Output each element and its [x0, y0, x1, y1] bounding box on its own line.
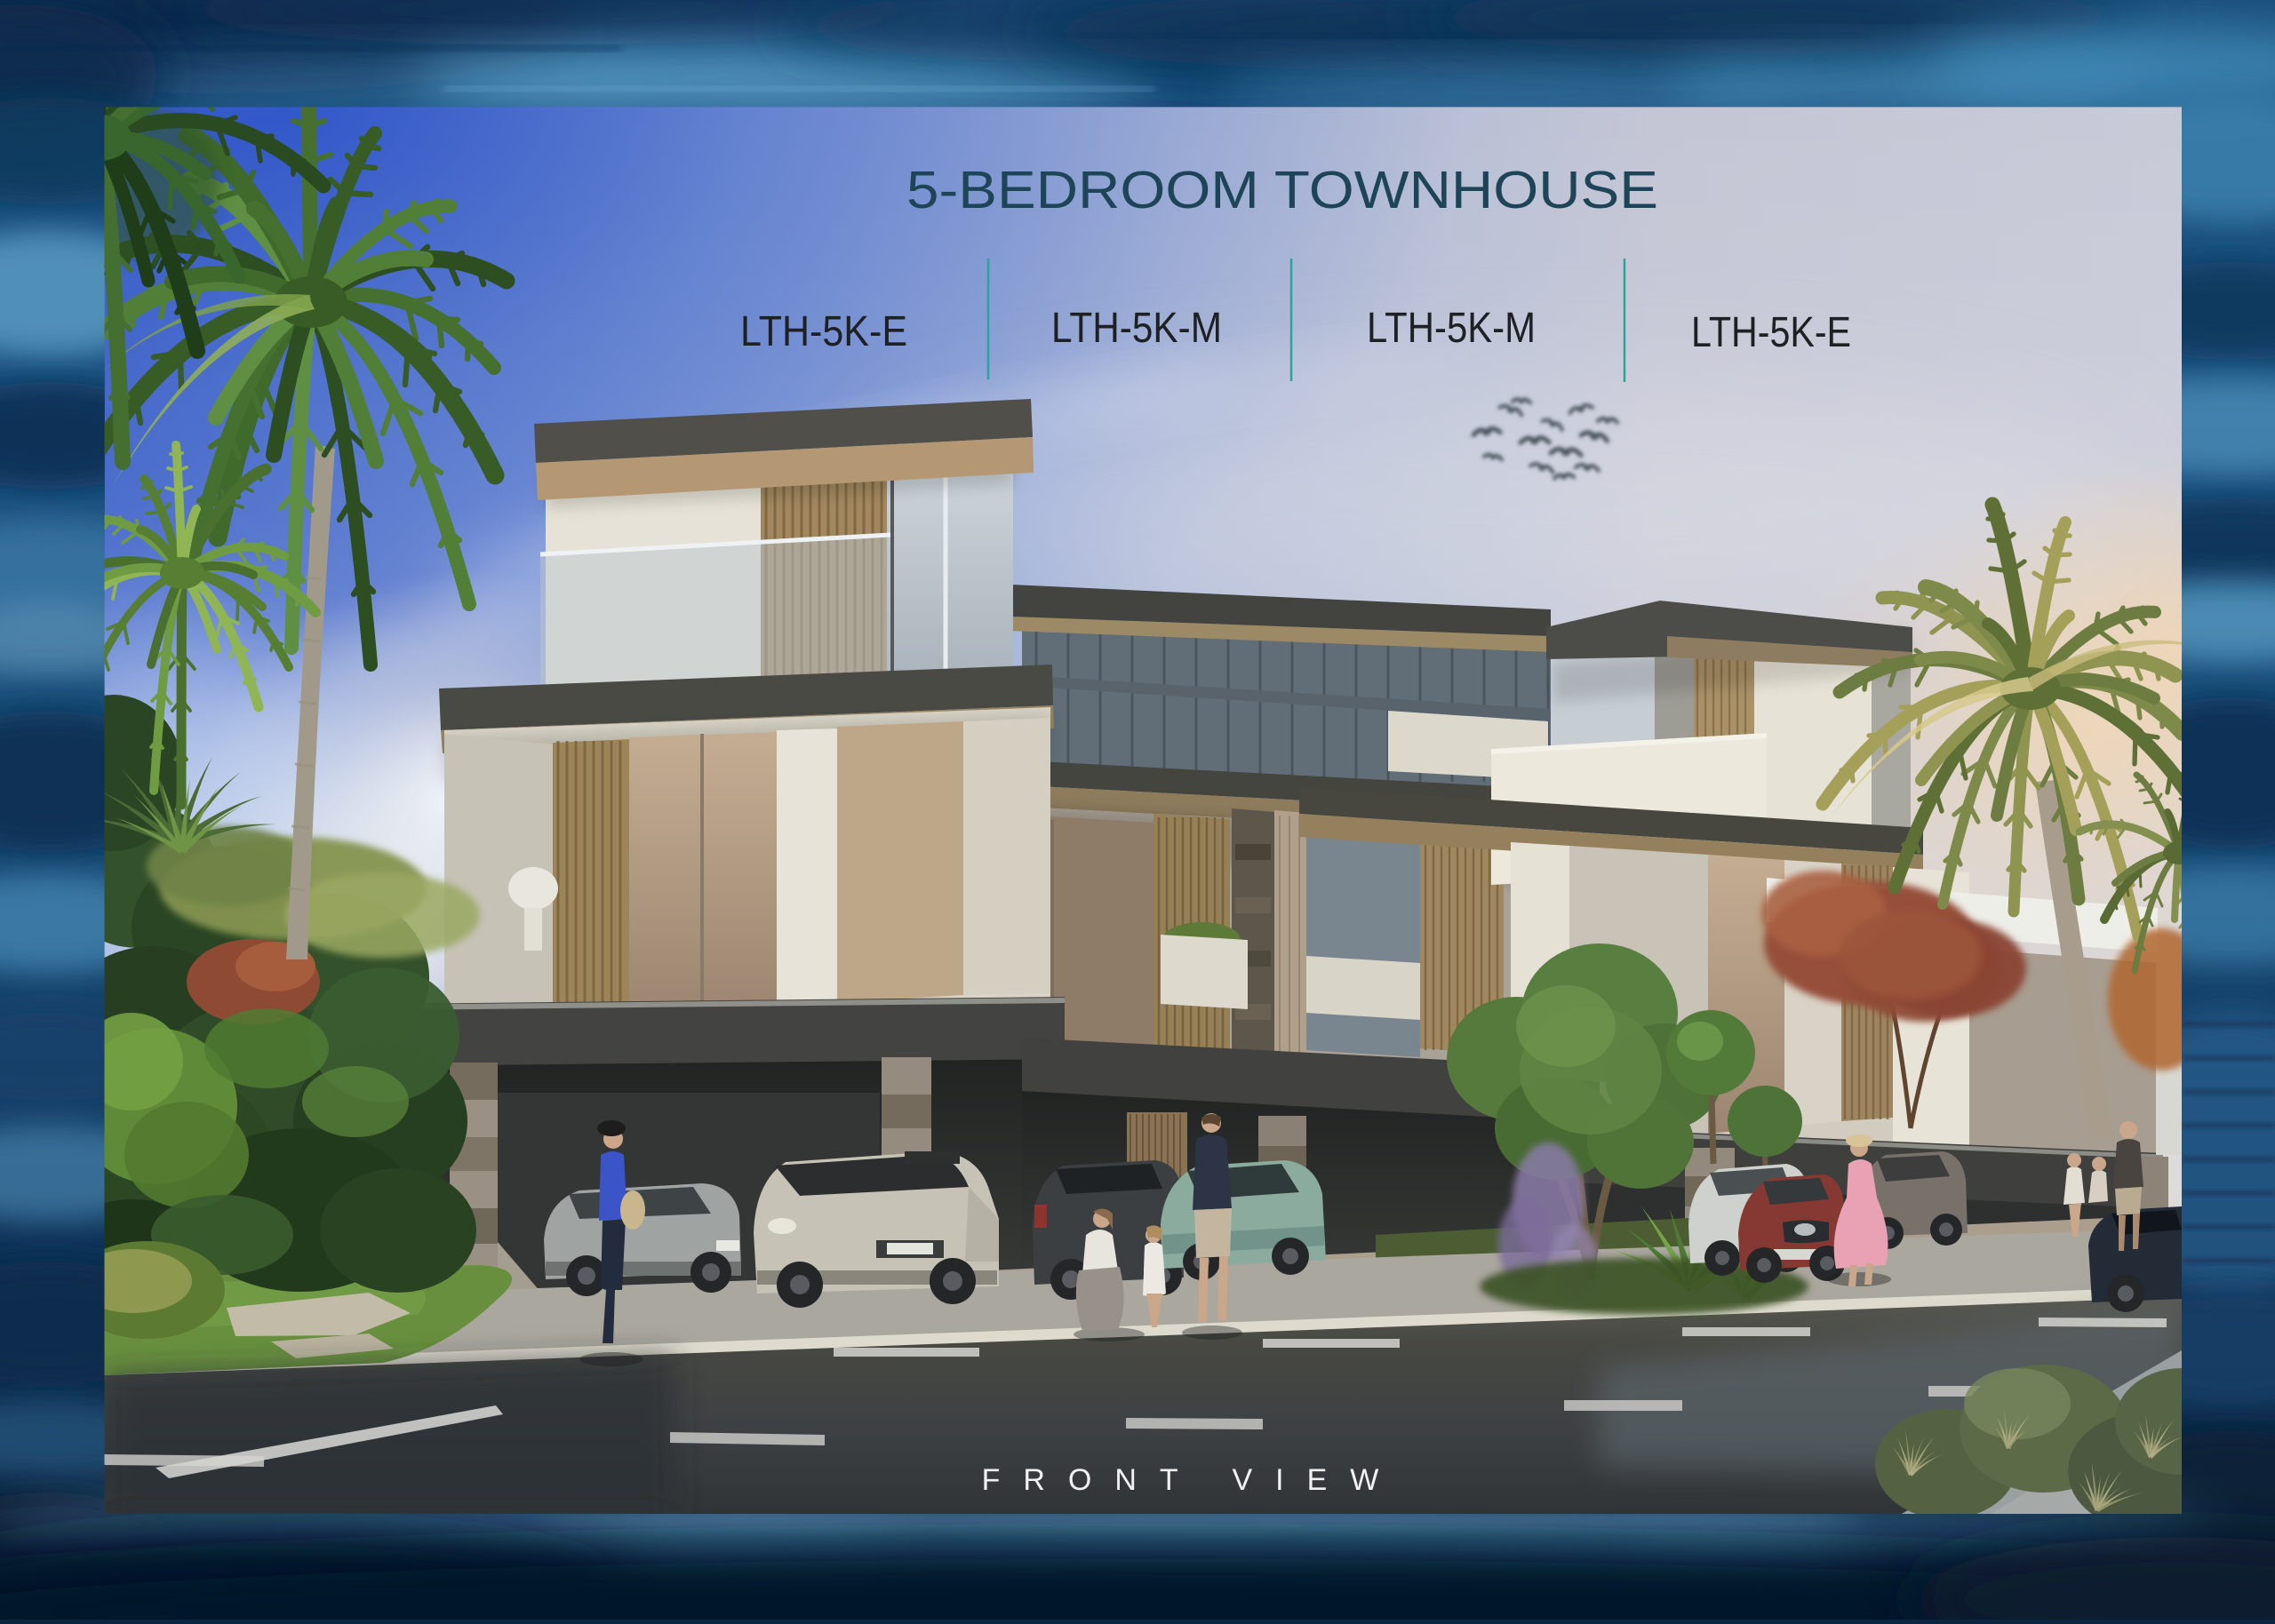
svg-text:LTH-5K-E: LTH-5K-E	[1691, 309, 1851, 356]
svg-text:LTH-5K-M: LTH-5K-M	[1367, 305, 1536, 352]
svg-text:LTH-5K-M: LTH-5K-M	[1051, 305, 1222, 352]
svg-text:5-BEDROOM TOWNHOUSE: 5-BEDROOM TOWNHOUSE	[906, 161, 1658, 219]
svg-text:LTH-5K-E: LTH-5K-E	[740, 308, 907, 355]
svg-text:FRONT VIEW: FRONT VIEW	[982, 1463, 1402, 1497]
